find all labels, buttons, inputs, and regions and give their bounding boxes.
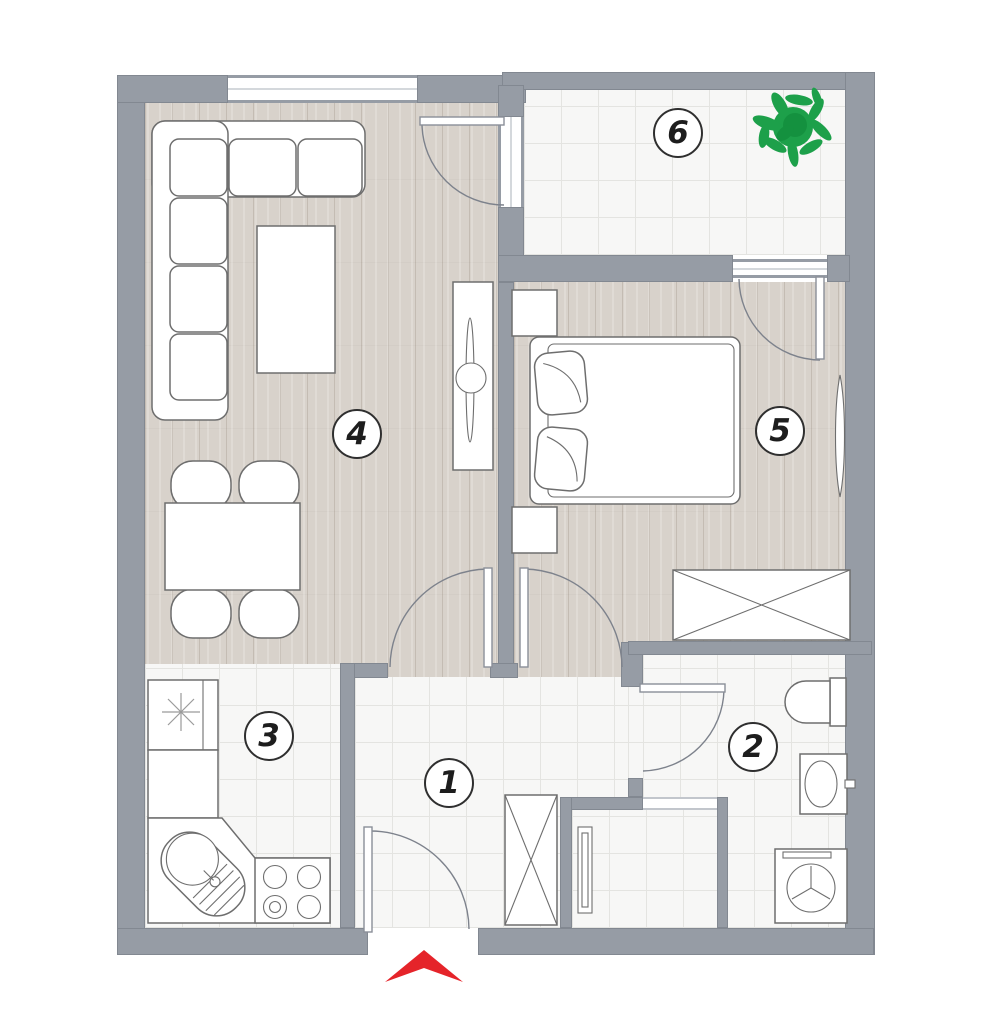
- wall-outer-bottom-right: [478, 928, 874, 955]
- storage-niche-floor: [572, 810, 717, 928]
- room-label-bedroom: 5: [755, 406, 805, 456]
- room-label-bathroom: 2: [728, 722, 778, 772]
- wall-bedroom-bathroom: [628, 641, 872, 655]
- room-label-balcony: 6: [653, 108, 703, 158]
- balcony-door-glazing: [498, 117, 524, 207]
- wall-livingroom-balcony-upper: [498, 85, 524, 117]
- bathroom-door-floor: [628, 687, 643, 780]
- wall-livingroom-bedroom: [498, 282, 514, 665]
- wall-outer-right: [845, 72, 875, 955]
- room-label-hallway: 1: [424, 758, 474, 808]
- wall-kitchen-hallway: [340, 663, 355, 928]
- wall-outer-left: [117, 75, 145, 955]
- entrance-arrow-icon: [385, 950, 463, 982]
- wall-balcony-bottom-left: [498, 255, 733, 282]
- kitchen-floor: [145, 664, 340, 928]
- wall-niche-right: [717, 797, 728, 928]
- bedroom-floor: [514, 282, 845, 678]
- room-label-living-room: 4: [332, 409, 382, 459]
- wall-niche-top: [560, 797, 643, 810]
- wall-outer-bottom-left: [117, 928, 368, 955]
- wall-outer-top-left: [117, 75, 228, 103]
- wall-center-foot: [490, 663, 518, 678]
- wall-bathroom-stub: [628, 778, 643, 797]
- niche-opening: [643, 797, 717, 810]
- wall-balcony-bottom-right: [827, 255, 850, 282]
- wall-balcony-top: [502, 72, 875, 90]
- wall-niche-left: [560, 797, 572, 928]
- balcony-bedroom-threshold: [733, 259, 827, 278]
- living-room-floor: [145, 103, 498, 678]
- window-living-room: [228, 75, 417, 103]
- floor-plan: 1 2 3 4 5 6: [0, 0, 996, 1024]
- room-label-kitchen: 3: [244, 711, 294, 761]
